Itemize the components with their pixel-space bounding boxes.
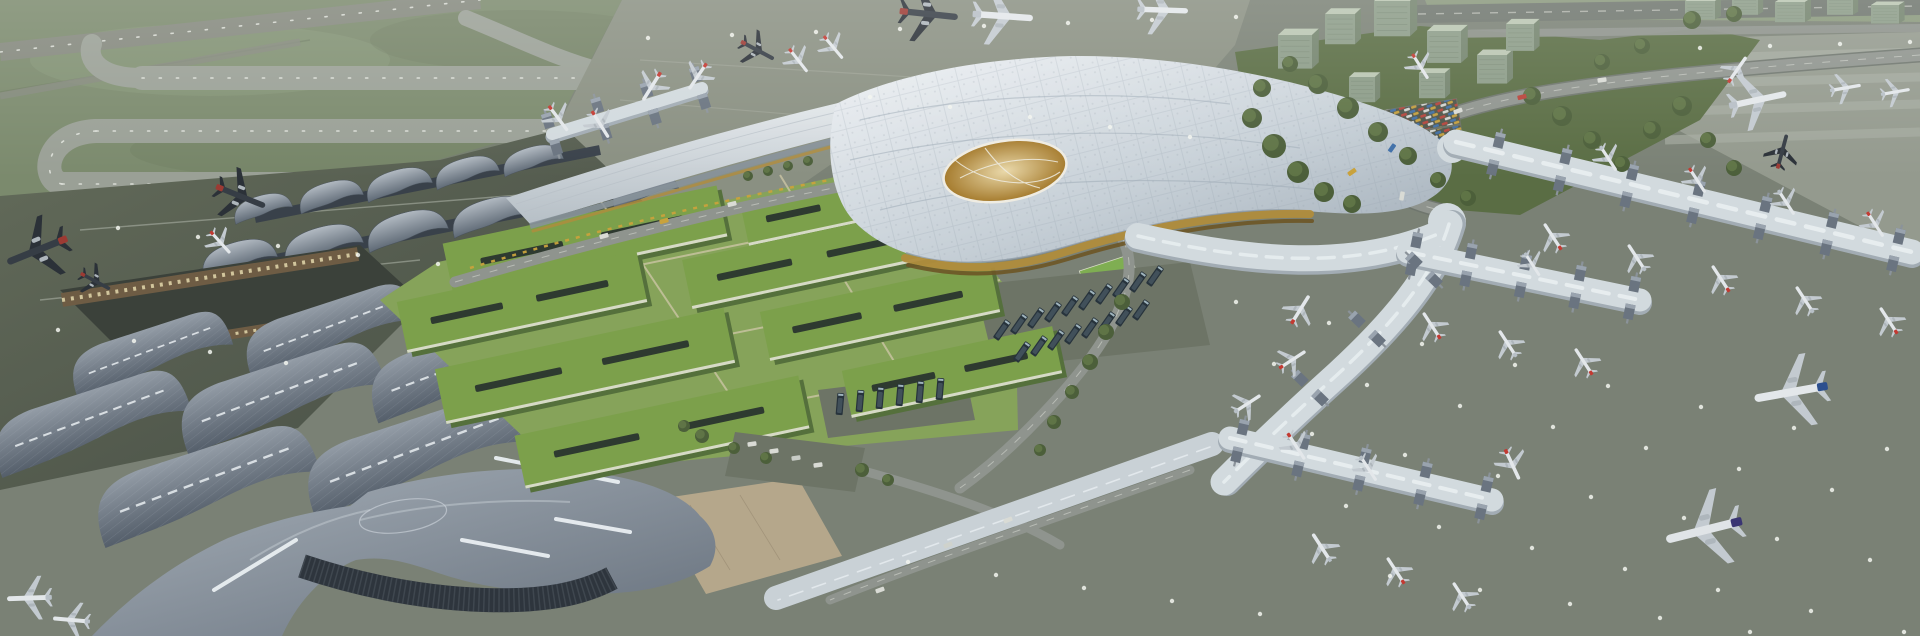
airport-scene-canvas — [0, 0, 1920, 636]
atmospheric-haze — [0, 0, 1920, 636]
airport-aerial-rendering — [0, 0, 1920, 636]
